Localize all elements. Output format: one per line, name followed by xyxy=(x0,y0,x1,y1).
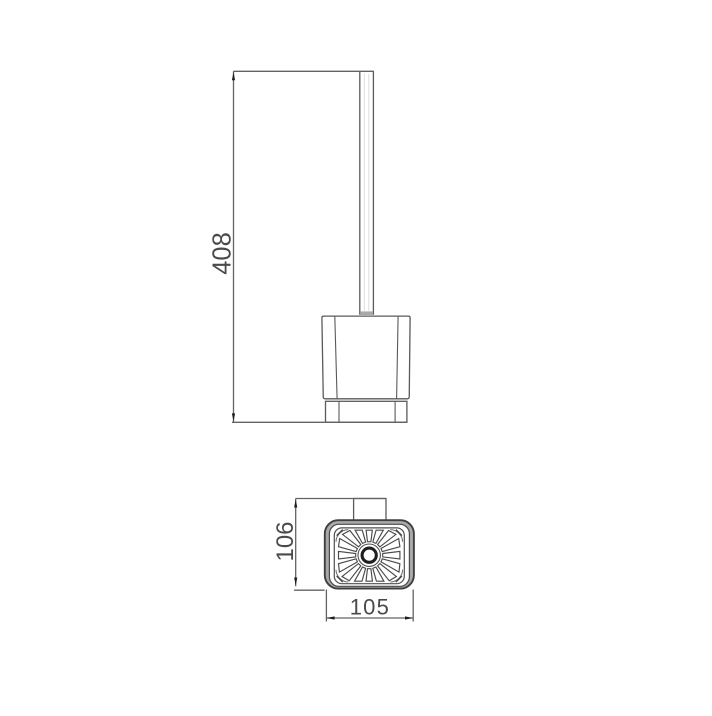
svg-text:106: 106 xyxy=(272,521,299,561)
svg-text:408: 408 xyxy=(209,232,237,275)
svg-text:105: 105 xyxy=(350,595,390,620)
